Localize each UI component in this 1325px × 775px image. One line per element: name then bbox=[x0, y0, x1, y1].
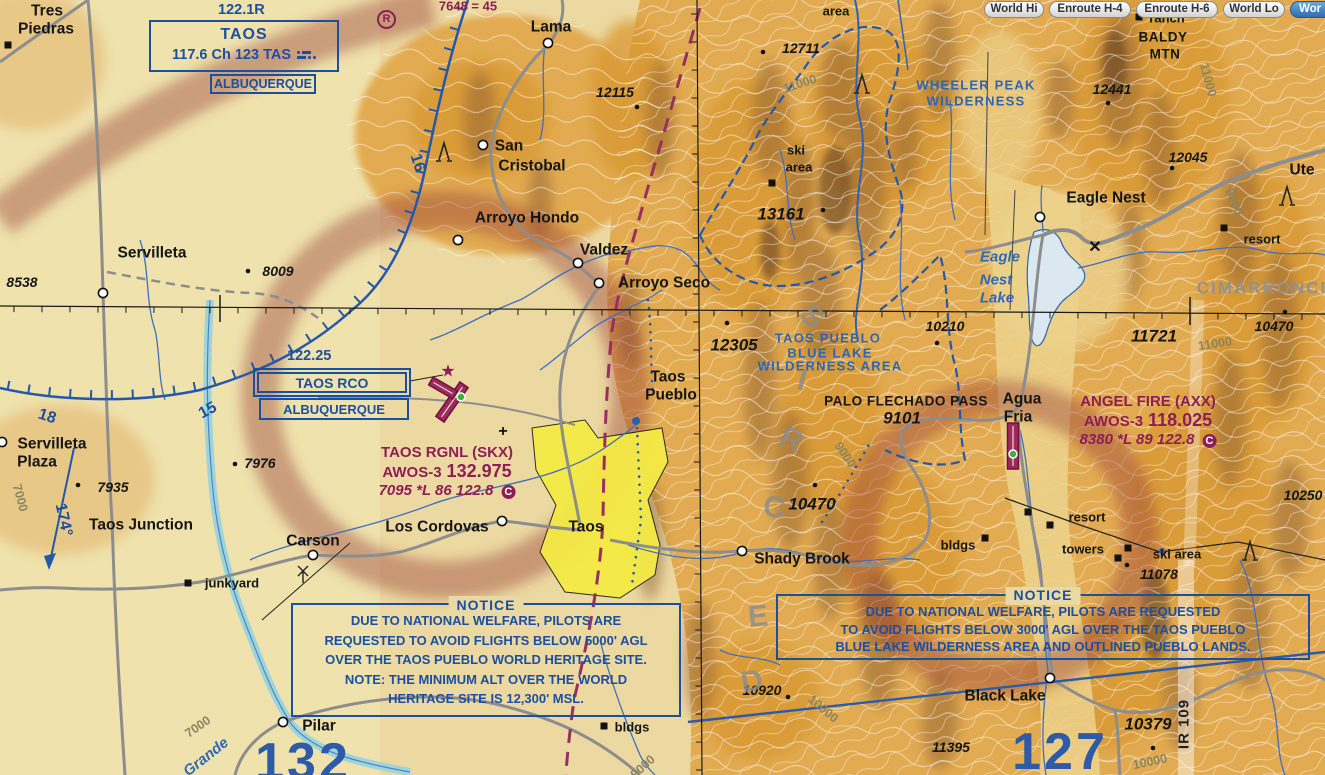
map-label: Servilleta bbox=[118, 245, 187, 261]
map-label: Eagle Nest bbox=[1066, 190, 1145, 206]
rco-fss-box: ALBUQUERQUE bbox=[259, 398, 409, 420]
map-label: 11395 bbox=[932, 740, 970, 754]
map-label: Servilleta bbox=[18, 436, 87, 452]
building-square-icon bbox=[1115, 555, 1122, 562]
town-circle-icon bbox=[453, 235, 462, 244]
elevation-dot-icon bbox=[1151, 746, 1156, 751]
building-square-icon bbox=[1047, 522, 1054, 529]
awos-label: AWOS-3 bbox=[1084, 413, 1143, 430]
map-label: ✕ bbox=[1088, 240, 1101, 256]
morse-code-icon bbox=[297, 51, 316, 59]
town-circle-icon bbox=[497, 516, 506, 525]
town-circle-icon bbox=[278, 717, 287, 726]
town-circle-icon bbox=[478, 140, 487, 149]
notice-line: TO AVOID FLIGHTS BELOW 3000' AGL OVER TH… bbox=[778, 621, 1308, 639]
building-square-icon bbox=[1221, 225, 1228, 232]
sectional-chart-viewer[interactable]: TresPiedrasLamaSanCristobalArroyo HondoV… bbox=[0, 0, 1325, 775]
rco-info-box: TAOS RCO bbox=[253, 368, 411, 397]
map-label: 8009 bbox=[262, 264, 293, 278]
notice-box-heritage: NOTICE DUE TO NATIONAL WELFARE, PILOTS A… bbox=[291, 603, 681, 717]
town-circle-icon bbox=[0, 437, 7, 446]
notice-line: DUE TO NATIONAL WELFARE, PILOTS ARE REQU… bbox=[778, 603, 1308, 621]
elevation-dot-icon bbox=[76, 483, 81, 488]
chart-button-enroute-h4[interactable]: Enroute H-4 bbox=[1049, 1, 1131, 18]
building-square-icon bbox=[5, 42, 12, 49]
elevation-dot-icon bbox=[233, 462, 238, 467]
notice-line: BLUE LAKE WILDERNESS AREA AND OUTLINED P… bbox=[778, 638, 1308, 656]
map-label: CIMARRONCI bbox=[1197, 280, 1325, 297]
map-label: Plaza bbox=[17, 454, 57, 470]
map-label: 11721 bbox=[1131, 328, 1177, 345]
map-label: area bbox=[823, 5, 850, 18]
map-label: 10250 bbox=[1284, 488, 1323, 502]
map-label: 7976 bbox=[244, 456, 275, 470]
elevation-dot-icon bbox=[813, 483, 818, 488]
map-label: 8538 bbox=[6, 275, 37, 289]
map-label: Black Lake bbox=[965, 688, 1046, 704]
vor-info-box: TAOS 117.6 Ch 123 TAS bbox=[149, 20, 339, 72]
map-label: area bbox=[786, 161, 813, 174]
building-square-icon bbox=[601, 723, 608, 730]
chart-button-active[interactable]: Wor bbox=[1290, 1, 1325, 18]
tick-mark bbox=[28, 385, 29, 394]
map-label: Lake bbox=[980, 291, 1014, 306]
map-label: Taos bbox=[568, 519, 603, 535]
notice-line: REQUESTED TO AVOID FLIGHTS BELOW 5000' A… bbox=[293, 631, 679, 651]
notice-line: HERITAGE SITE IS 12,300' MSL. bbox=[293, 689, 679, 709]
town-circle-icon bbox=[594, 278, 603, 287]
map-label: 11078 bbox=[1140, 567, 1178, 581]
map-label: WILDERNESS AREA bbox=[758, 360, 903, 373]
elevation-dot-icon bbox=[935, 341, 940, 346]
notice-line: NOTE: THE MINIMUM ALT OVER THE WORLD bbox=[293, 670, 679, 690]
elevation-dot-icon bbox=[246, 269, 251, 274]
map-label: WHEELER PEAK bbox=[916, 79, 1035, 92]
map-label: San bbox=[495, 138, 523, 154]
map-label: ★ bbox=[440, 363, 455, 380]
map-label: PALO FLECHADO PASS bbox=[824, 394, 988, 408]
chart-button-enroute-h6[interactable]: Enroute H-6 bbox=[1136, 1, 1218, 18]
town-circle-icon bbox=[1045, 673, 1054, 682]
airport-name: ANGEL FIRE (AXX) bbox=[1080, 393, 1217, 410]
elevation-dot-icon bbox=[1283, 310, 1288, 315]
building-square-icon bbox=[185, 580, 192, 587]
awos-frequency: 132.975 bbox=[447, 461, 512, 482]
elevation-dot-icon bbox=[761, 50, 766, 55]
map-label: resort bbox=[1244, 233, 1281, 246]
elevation-dot-icon bbox=[635, 105, 640, 110]
tick-mark bbox=[70, 389, 71, 398]
map-label: towers bbox=[1062, 543, 1104, 556]
map-label: 13161 bbox=[757, 206, 804, 223]
town-circle-icon bbox=[737, 546, 746, 555]
blue-point-icon bbox=[632, 417, 640, 425]
chart-button-world-lo[interactable]: World Lo bbox=[1223, 1, 1285, 18]
tick-mark bbox=[49, 387, 50, 396]
rco-frequency: 122.25 bbox=[287, 348, 331, 364]
vor-name: TAOS bbox=[151, 26, 337, 44]
airport-data-line: 8380 *L 89 122.8 bbox=[1080, 431, 1195, 448]
map-label: Carson bbox=[286, 533, 339, 549]
map-label: Agua bbox=[1003, 391, 1042, 407]
tick-mark bbox=[153, 388, 154, 397]
map-label: bldgs bbox=[615, 721, 650, 734]
runway-icon bbox=[1008, 423, 1019, 469]
map-label: Cristobal bbox=[498, 158, 565, 174]
private-airport-icon: R bbox=[377, 10, 396, 29]
map-label: Piedras bbox=[18, 21, 74, 37]
map-label: 132 bbox=[255, 736, 351, 775]
map-label: 12115 bbox=[596, 85, 634, 99]
map-label: Arroyo Hondo bbox=[475, 210, 579, 226]
airport-data-line: 7095 *L 86 122.8 bbox=[379, 482, 494, 499]
elevation-dot-icon bbox=[1125, 563, 1130, 568]
map-label: Ute bbox=[1290, 162, 1315, 178]
map-label: E bbox=[747, 601, 770, 633]
map-label: bldgs bbox=[941, 539, 976, 552]
vor-fss-box: ALBUQUERQUE bbox=[210, 74, 316, 94]
map-label: 127 bbox=[1012, 726, 1108, 775]
building-square-icon bbox=[1125, 545, 1132, 552]
map-label: 10379 bbox=[1124, 716, 1171, 733]
notice-title: NOTICE bbox=[1006, 587, 1081, 605]
building-square-icon bbox=[769, 180, 776, 187]
map-label: BALDY bbox=[1139, 30, 1188, 44]
vor-frequency: 122.1R bbox=[218, 2, 265, 18]
elevation-dot-icon bbox=[786, 695, 791, 700]
vor-ident-info: 117.6 Ch 123 TAS bbox=[172, 47, 291, 63]
map-label: IR 109 bbox=[1177, 699, 1192, 749]
ctaf-icon: C bbox=[501, 485, 515, 499]
map-label: Taos bbox=[650, 369, 685, 385]
beacon-icon bbox=[1009, 450, 1017, 458]
map-label: Arroyo Seco bbox=[618, 275, 710, 291]
map-label: Lama bbox=[531, 19, 572, 35]
map-label: 12441 bbox=[1093, 82, 1132, 96]
awos-frequency: 118.025 bbox=[1148, 410, 1212, 431]
beacon-icon bbox=[457, 393, 465, 401]
map-label: Eagle bbox=[980, 250, 1020, 265]
map-label: + bbox=[498, 424, 507, 440]
town-circle-icon bbox=[573, 258, 582, 267]
map-label: 10470 bbox=[1255, 319, 1294, 333]
map-label: 9101 bbox=[883, 410, 921, 427]
building-square-icon bbox=[982, 535, 989, 542]
elevation-dot-icon bbox=[725, 321, 730, 326]
map-label: 12045 bbox=[1169, 150, 1208, 164]
map-label: ski area bbox=[1153, 548, 1201, 561]
map-label: Taos Junction bbox=[89, 517, 193, 533]
map-label: 12711 bbox=[782, 41, 820, 55]
map-label: 7648 = 45 bbox=[439, 0, 497, 13]
airport-data-taos-rgnl: TAOS RGNL (SKX) AWOS-3 132.975 7095 *L 8… bbox=[379, 444, 516, 499]
elevation-dot-icon bbox=[1106, 101, 1111, 106]
map-label: Los Cordovas bbox=[385, 519, 488, 535]
map-label: Shady Brook bbox=[754, 551, 850, 567]
map-label: 12305 bbox=[710, 337, 757, 354]
chart-button-world-hi[interactable]: World Hi bbox=[984, 1, 1044, 18]
tick-mark bbox=[173, 386, 174, 395]
airport-name: TAOS RGNL (SKX) bbox=[379, 444, 516, 461]
elevation-dot-icon bbox=[821, 208, 826, 213]
map-label: WILDERNESS bbox=[927, 95, 1026, 108]
map-label: Pilar bbox=[302, 718, 336, 734]
map-label: resort bbox=[1069, 511, 1106, 524]
notice-title: NOTICE bbox=[449, 596, 524, 616]
elevation-dot-icon bbox=[1170, 166, 1175, 171]
town-circle-icon bbox=[308, 550, 317, 559]
map-label: ski bbox=[787, 144, 805, 157]
map-label: MTN bbox=[1150, 47, 1181, 61]
town-circle-icon bbox=[543, 38, 552, 47]
map-label: 7935 bbox=[97, 480, 128, 494]
map-label: 10470 bbox=[788, 496, 835, 513]
map-label: Valdez bbox=[580, 242, 628, 258]
map-label: Fria bbox=[1004, 409, 1032, 425]
map-label: Tres bbox=[31, 3, 63, 19]
town-circle-icon bbox=[98, 288, 107, 297]
notice-box-blue-lake: NOTICE DUE TO NATIONAL WELFARE, PILOTS A… bbox=[776, 594, 1310, 660]
notice-line: OVER THE TAOS PUEBLO WORLD HERITAGE SITE… bbox=[293, 650, 679, 670]
map-label: 10210 bbox=[926, 319, 965, 333]
map-label: TAOS PUEBLO bbox=[775, 332, 881, 345]
map-label: junkyard bbox=[205, 577, 259, 590]
building-square-icon bbox=[1025, 509, 1032, 516]
town-circle-icon bbox=[1035, 212, 1044, 221]
airport-data-angel-fire: ANGEL FIRE (AXX) AWOS-3 118.025 8380 *L … bbox=[1080, 393, 1217, 448]
ctaf-icon: C bbox=[1202, 434, 1216, 448]
awos-label: AWOS-3 bbox=[382, 464, 441, 481]
map-label: Pueblo bbox=[645, 387, 697, 403]
map-label: Nest bbox=[980, 273, 1013, 288]
